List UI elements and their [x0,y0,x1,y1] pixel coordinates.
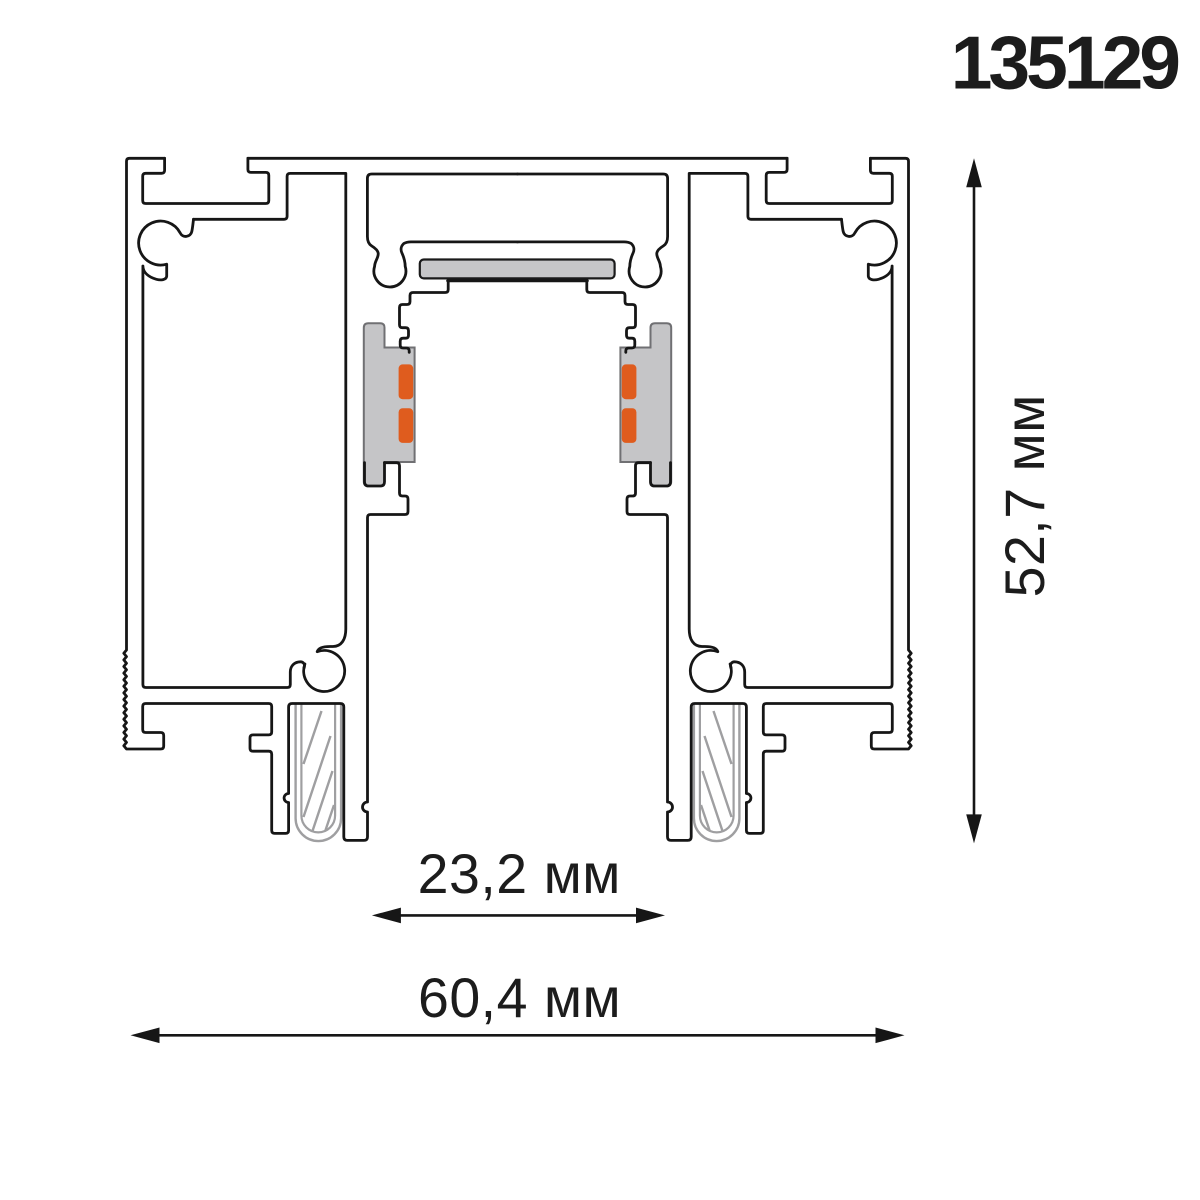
svg-text:23,2 мм: 23,2 мм [418,843,621,905]
svg-text:135129: 135129 [951,21,1179,105]
svg-text:60,4 мм: 60,4 мм [418,967,621,1029]
svg-text:52,7 мм: 52,7 мм [994,394,1056,597]
